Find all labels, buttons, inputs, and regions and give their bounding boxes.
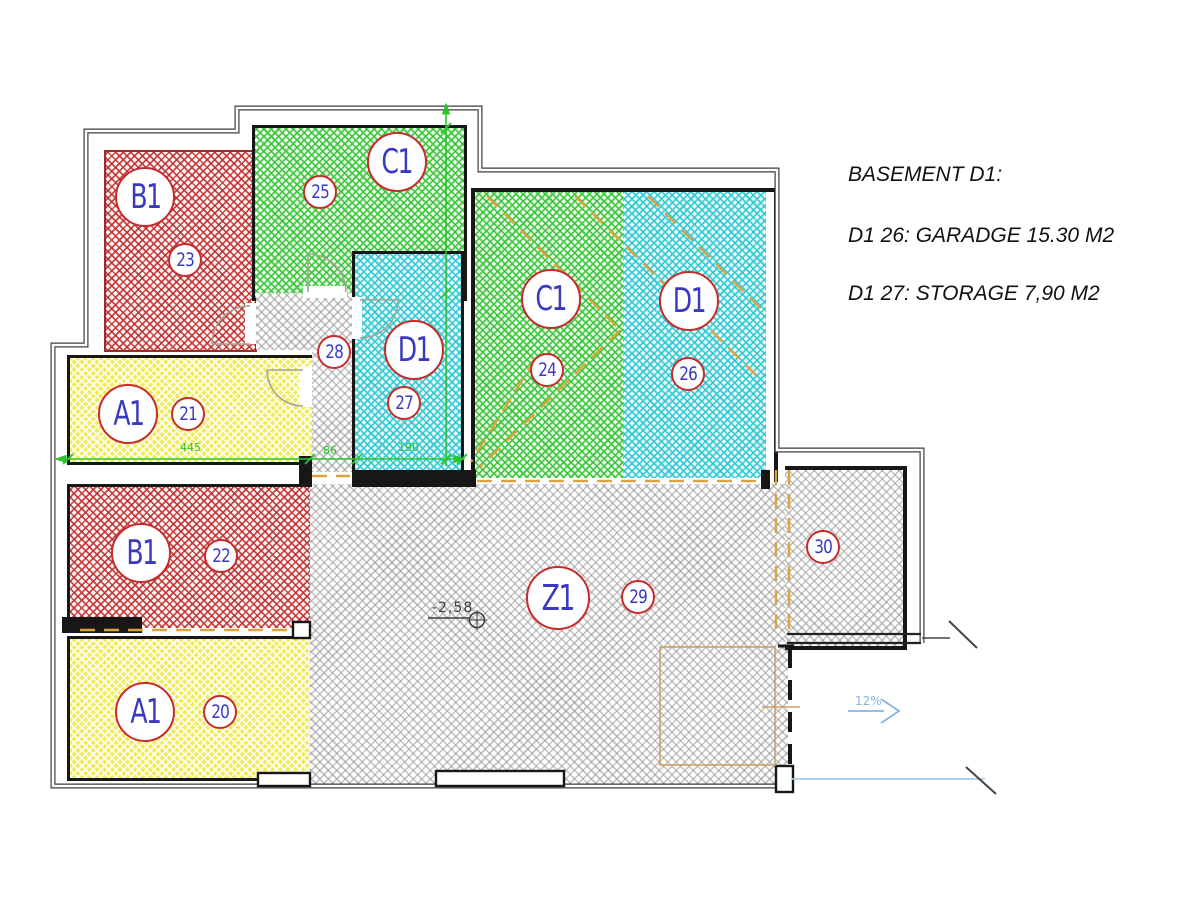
room-number-23: 23	[168, 243, 202, 277]
room-number-29: 29	[621, 580, 655, 614]
room-c1-24-area	[475, 192, 623, 478]
room-a1-20-area	[67, 636, 318, 781]
break-marks	[922, 621, 996, 794]
room-label-c1-25: C1	[367, 132, 427, 192]
room-label-text: A1	[130, 692, 160, 732]
floor-plan-canvas: B1 23 C1 25 D1 27 C1 24 D1 26 A1 21 B1 2…	[0, 0, 1200, 900]
room-label-text: C1	[382, 142, 413, 182]
room-label-text: D1	[673, 281, 705, 321]
room-number-28: 28	[317, 335, 351, 369]
room-label-text: C1	[536, 279, 567, 319]
room-number-text: 28	[325, 341, 343, 363]
room-number-25: 25	[303, 175, 337, 209]
room-number-24: 24	[530, 353, 564, 387]
room-label-text: B1	[130, 177, 160, 217]
room-number-text: 26	[679, 363, 697, 385]
room-label-z1-29: Z1	[526, 566, 590, 630]
room-label-a1-21: A1	[98, 384, 158, 444]
room-number-20: 20	[203, 695, 237, 729]
room-label-text: B1	[126, 533, 156, 573]
room-number-text: 23	[176, 249, 194, 271]
room-number-text: 25	[311, 181, 329, 203]
ramp-slope-value: 12%	[855, 694, 882, 708]
zone-z1-area	[310, 484, 788, 787]
basement-title: BASEMENT D1:	[848, 163, 1002, 187]
dimension-label-190: 190	[398, 441, 419, 454]
room-number-30: 30	[806, 530, 840, 564]
room-30-area	[785, 466, 907, 650]
room-number-26: 26	[671, 357, 705, 391]
room-number-text: 20	[211, 701, 229, 723]
storage-area-note: D1 27: STORAGE 7,90 M2	[848, 282, 1100, 306]
room-label-b1-23: B1	[115, 167, 175, 227]
garage-area-note: D1 26: GARADGE 15.30 M2	[848, 224, 1114, 248]
dimension-label-86: 86	[323, 444, 337, 457]
room-number-21: 21	[171, 397, 205, 431]
room-label-d1-26: D1	[659, 271, 719, 331]
room-label-c1-24: C1	[521, 269, 581, 329]
room-label-text: Z1	[542, 578, 574, 619]
elevation-value: -2,58	[432, 600, 473, 616]
room-label-b1-22: B1	[111, 523, 171, 583]
room-number-22: 22	[204, 539, 238, 573]
dimension-label-445: 445	[180, 441, 201, 454]
room-label-d1-27: D1	[384, 320, 444, 380]
room-label-text: A1	[113, 394, 143, 434]
garage-block	[471, 188, 778, 482]
room-number-27: 27	[387, 386, 421, 420]
room-label-a1-20: A1	[115, 682, 175, 742]
room-b1-22-area	[67, 484, 318, 628]
room-number-text: 27	[395, 392, 413, 414]
room-d1-26-area	[623, 192, 766, 478]
room-label-text: D1	[398, 330, 430, 370]
room-number-text: 24	[538, 359, 556, 381]
room-number-text: 29	[629, 586, 647, 608]
room-number-text: 30	[814, 536, 832, 558]
room-number-text: 22	[212, 545, 230, 567]
room-number-text: 21	[179, 403, 197, 425]
